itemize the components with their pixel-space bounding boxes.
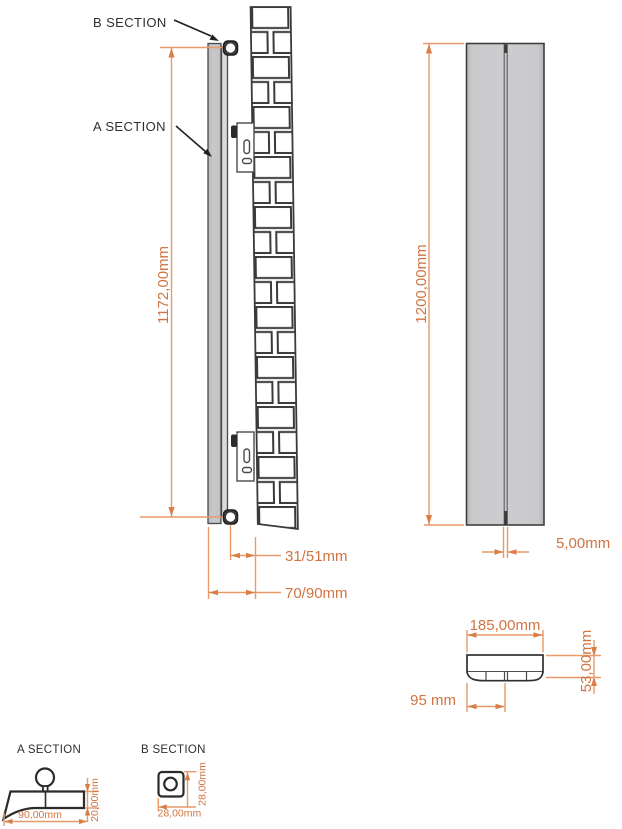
b-section-callout-label: B SECTION bbox=[93, 15, 167, 30]
wall-group bbox=[251, 7, 298, 529]
bracket-slot-vertical bbox=[244, 449, 250, 463]
arrowhead-left bbox=[231, 553, 240, 559]
gap-mark-bottom bbox=[504, 511, 507, 525]
bracket-hook bbox=[231, 126, 237, 139]
dim-28-width: 28,00mm bbox=[158, 798, 202, 820]
b-section-leader-line bbox=[174, 20, 211, 36]
side-panel-front bbox=[208, 44, 221, 524]
a-section-detail: A SECTION 20,00mm 90,00mm bbox=[4, 744, 102, 826]
dim-20: 20,00mm bbox=[85, 778, 101, 822]
pipe-bottom bbox=[224, 510, 238, 524]
dim-185: 185,00mm bbox=[467, 617, 543, 653]
a-section-title: A SECTION bbox=[17, 744, 81, 756]
arrowhead-right bbox=[246, 590, 255, 596]
a-section-callout-label: A SECTION bbox=[93, 119, 166, 134]
dim-20-text: 20,00mm bbox=[89, 778, 101, 822]
top-view: 185,00mm 53,00mm 95 mm bbox=[410, 617, 601, 712]
side-panel-rear-strip bbox=[222, 47, 228, 517]
b-section-detail: B SECTION 28,00mm 28,00mm bbox=[141, 744, 209, 820]
bracket-slot-horizontal bbox=[243, 468, 252, 473]
pipe-hole bbox=[226, 512, 235, 521]
drawing-svg: B SECTION A SECTION 1172,00mm 31/51mm bbox=[0, 0, 622, 829]
arrowhead-right bbox=[246, 553, 255, 559]
wall-bracket-bottom bbox=[231, 432, 254, 481]
dim-5mm-text: 5,00mm bbox=[556, 535, 610, 552]
wall-bracket-top bbox=[231, 123, 254, 172]
arrowhead-down bbox=[168, 507, 174, 517]
arrowhead-left bbox=[209, 590, 218, 596]
dim-wall-offsets: 31/51mm 70/90mm bbox=[209, 521, 348, 602]
front-view: 1200,00mm 5,00mm bbox=[413, 44, 610, 559]
pipe-hole bbox=[226, 43, 235, 52]
pipe-circle bbox=[36, 769, 54, 787]
arrowhead-right bbox=[496, 704, 505, 710]
radiator-body bbox=[467, 44, 545, 526]
dim-53: 53,00mm bbox=[546, 630, 601, 694]
dim-1172-text: 1172,00mm bbox=[155, 246, 172, 324]
a-section-leader-line bbox=[176, 126, 206, 152]
section-back-plate bbox=[467, 655, 543, 672]
dim-185-text: 185,00mm bbox=[470, 617, 541, 634]
dim-90-text: 90,00mm bbox=[18, 809, 62, 821]
dim-70-90-text: 70/90mm bbox=[285, 585, 348, 602]
dim-gap: 5,00mm bbox=[482, 527, 610, 558]
arrowhead-right bbox=[495, 549, 504, 555]
arrowhead-down bbox=[426, 515, 432, 525]
arrowhead-up bbox=[426, 44, 432, 54]
brick-wall bbox=[251, 7, 298, 529]
bracket-hook bbox=[231, 435, 237, 448]
dim-1200-text: 1200,00mm bbox=[413, 244, 430, 323]
dim-1200: 1200,00mm bbox=[413, 44, 464, 526]
arrowhead-right bbox=[79, 819, 87, 824]
dim-95: 95 mm bbox=[410, 683, 505, 712]
arrowhead-up bbox=[185, 772, 190, 780]
arrowhead-up bbox=[168, 48, 174, 58]
b-section-title: B SECTION bbox=[141, 744, 206, 756]
arrowhead-left bbox=[5, 819, 13, 824]
gap-mark-top bbox=[504, 45, 507, 54]
dim-53-text: 53,00mm bbox=[578, 630, 595, 693]
dim-28-width-text: 28,00mm bbox=[158, 808, 202, 820]
dim-28-height-text: 28,00mm bbox=[197, 762, 209, 806]
bracket-slot-vertical bbox=[244, 140, 250, 154]
dim-28-height: 28,00mm bbox=[184, 762, 209, 807]
side-view: B SECTION A SECTION 1172,00mm 31/51mm bbox=[93, 7, 348, 602]
pipe-top bbox=[224, 41, 238, 55]
dim-95-text: 95 mm bbox=[410, 692, 456, 709]
arrowhead-left bbox=[508, 549, 517, 555]
pipe-bore-circle bbox=[164, 778, 177, 791]
bracket-slot-horizontal bbox=[243, 159, 252, 164]
dim-31-51-text: 31/51mm bbox=[285, 548, 348, 565]
arrowhead-left bbox=[468, 704, 477, 710]
radiator-technical-drawing: B SECTION A SECTION 1172,00mm 31/51mm bbox=[0, 0, 622, 829]
